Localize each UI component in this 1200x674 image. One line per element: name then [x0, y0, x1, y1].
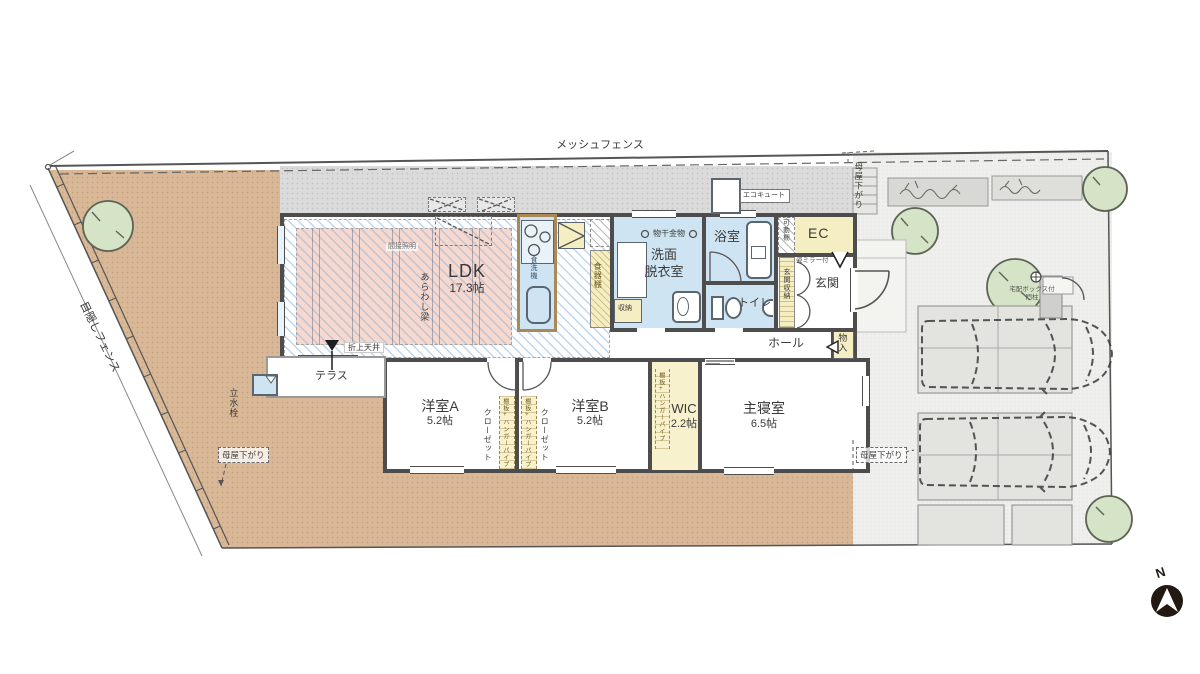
- moyasagari-right: 母屋下がり: [856, 447, 907, 463]
- shelf-strip-label: 可動棚: [781, 219, 788, 242]
- window-room-a: [410, 466, 464, 474]
- wall-toilet-genkan: [774, 213, 778, 332]
- bath-label: 浴室: [714, 230, 740, 245]
- window-room-b: [556, 466, 616, 474]
- closet-a-hanger-label: 棚板+ハンガーパイプ: [501, 398, 508, 468]
- oriage-tenjo-label: 折上天井: [344, 342, 384, 353]
- wall-washroom-bath: [702, 213, 706, 332]
- washing-machine-door: [677, 297, 689, 316]
- washroom-label-1: 洗面: [630, 248, 698, 263]
- entry-door-opening: [850, 268, 858, 312]
- wic-label: WIC: [664, 402, 704, 417]
- gate-label-2: 門柱: [998, 294, 1066, 301]
- master-size: 6.5帖: [728, 418, 800, 431]
- tap-label: 立水栓: [228, 388, 238, 418]
- gate-label-1: 宅配ボックス付: [998, 286, 1066, 293]
- door-room-b: [523, 358, 551, 365]
- dishwasher-label: 食洗機: [529, 256, 537, 280]
- ecocute-unit: [711, 178, 741, 214]
- hall-label: ホール: [768, 337, 804, 351]
- door-toilet: [715, 328, 743, 333]
- room-b-label: 洋室B: [558, 398, 622, 414]
- ldk-size: 17.3帖: [432, 282, 502, 296]
- stove: [521, 220, 554, 264]
- ecocute-label: エコキュート: [743, 192, 785, 200]
- fence-top-label: メッシュフェンス: [540, 139, 660, 152]
- washroom-storage-label: 収納: [618, 305, 632, 313]
- window-ldk-left-1: [277, 226, 285, 264]
- monoire-label: 物入: [837, 333, 847, 353]
- exterior-unit-1: [428, 197, 466, 212]
- window-washroom-top: [632, 210, 676, 218]
- window-master-right: [862, 376, 870, 406]
- arawashi-hari-label: あらわし梁: [419, 272, 429, 322]
- cupboard-label: 食器棚: [593, 262, 602, 289]
- wall-room-b-wic: [648, 362, 652, 471]
- moyasagari-left: 母屋下がり: [218, 447, 269, 463]
- door-washroom: [637, 328, 665, 333]
- room-a-size: 5.2帖: [408, 415, 472, 428]
- moyasagari-topright: 母屋下がり: [853, 162, 863, 210]
- kansetsu-shomei-label: 間接照明: [386, 243, 418, 251]
- door-room-a: [487, 358, 515, 365]
- wall-bath-toilet: [704, 281, 774, 285]
- toilet-tank: [711, 296, 724, 320]
- compass-n-label: N: [1154, 565, 1168, 582]
- wall-monoire: [831, 331, 833, 359]
- wall-ldk-washroom: [610, 213, 614, 332]
- outdoor-tap: [252, 374, 278, 396]
- ldk-label: LDK: [432, 261, 502, 282]
- wic-hanger-label: 棚板+ハンガーパイプ: [657, 372, 664, 442]
- closet-b-hanger-label: 棚板+ハンガーパイプ: [523, 398, 530, 468]
- bathtub-inner: [751, 246, 766, 259]
- toilet-label: トイレ: [738, 297, 771, 310]
- door-master: [705, 358, 735, 365]
- terrace-label: テラス: [315, 370, 348, 383]
- genkan-storage-label: 玄関収納: [782, 268, 790, 300]
- room-b-size: 5.2帖: [558, 415, 622, 428]
- ec-label: EC: [808, 225, 829, 241]
- room-a-label: 洋室A: [408, 398, 472, 414]
- washroom-label-2: 脱衣室: [630, 265, 698, 280]
- master-label: 主寝室: [728, 400, 800, 416]
- mirror-label: 姿ミラー付: [796, 257, 829, 264]
- kitchen-sink: [526, 286, 551, 324]
- wall-room-a-b: [515, 362, 519, 471]
- refrigerator-space: [558, 222, 585, 249]
- ground-driveway: [853, 152, 1112, 545]
- window-master-bottom: [724, 467, 774, 475]
- genkan-label: 玄関: [815, 277, 839, 291]
- closet-b-label: クローゼット: [540, 408, 549, 462]
- ceiling-unit: [435, 216, 492, 246]
- closet-a-label: クローゼット: [483, 408, 492, 462]
- window-ldk-left-2: [277, 302, 285, 336]
- wic-size: 2.2帖: [664, 418, 704, 431]
- monohoshi-label: 物干金物: [650, 229, 688, 238]
- exterior-unit-2: [477, 197, 515, 212]
- floor-plan: メッシュフェンス 目隠しフェンス LDK 17.3帖 あらわし梁 間接照明 折上…: [0, 0, 1200, 674]
